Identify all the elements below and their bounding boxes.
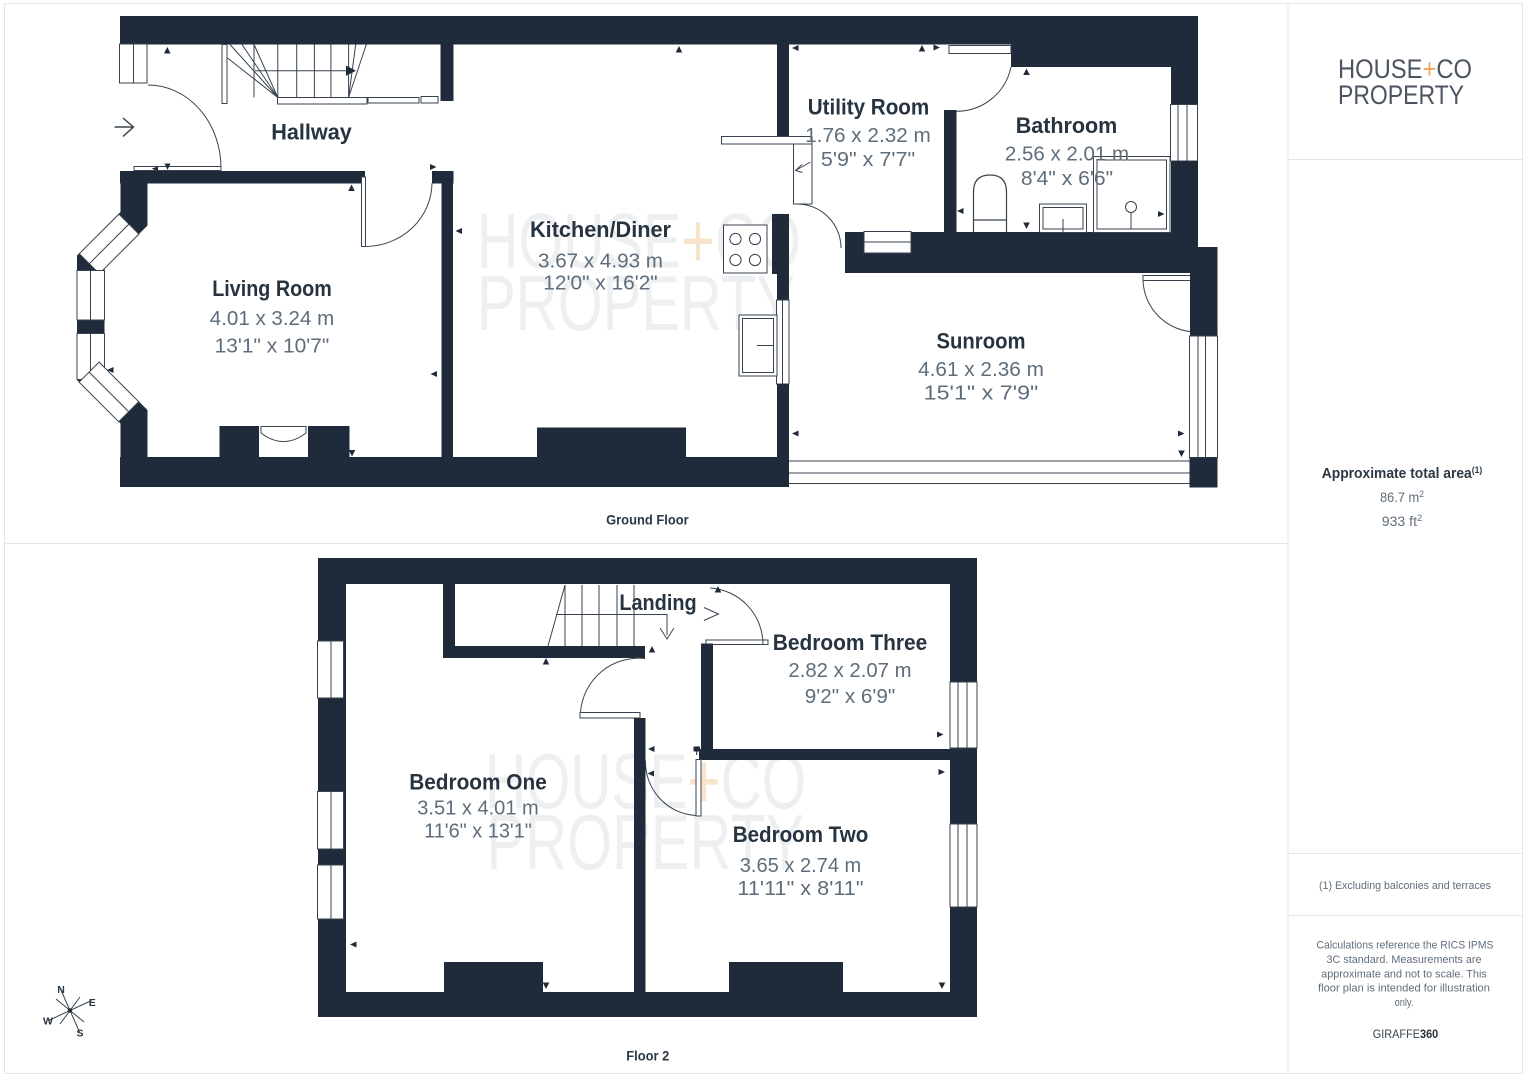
svg-text:E: E [89, 997, 96, 1009]
svg-text:Bedroom Three: Bedroom Three [773, 630, 928, 655]
svg-text:Hallway: Hallway [271, 120, 352, 145]
svg-text:only.: only. [1395, 997, 1414, 1009]
svg-text:(1) Excluding balconies and te: (1) Excluding balconies and terraces [1319, 880, 1491, 892]
svg-text:3C standard. Measurements are: 3C standard. Measurements are [1327, 954, 1482, 966]
svg-text:Ground Floor: Ground Floor [606, 513, 689, 528]
svg-text:Sunroom: Sunroom [937, 329, 1026, 354]
svg-text:4.01 x 3.24 m: 4.01 x 3.24 m [210, 308, 334, 330]
svg-text:12'0" x 16'2": 12'0" x 16'2" [543, 273, 657, 295]
svg-text:Floor 2: Floor 2 [626, 1049, 669, 1064]
svg-text:approximate and not to scale.: approximate and not to scale. This [1321, 968, 1487, 980]
svg-text:3.51 x 4.01 m: 3.51 x 4.01 m [417, 798, 539, 820]
svg-text:floor plan is intended for ill: floor plan is intended for illustration [1318, 983, 1490, 995]
svg-text:11'6" x 13'1": 11'6" x 13'1" [424, 821, 532, 843]
svg-text:8'4" x 6'6": 8'4" x 6'6" [1021, 168, 1113, 190]
svg-text:GIRAFFE360: GIRAFFE360 [1373, 1027, 1439, 1041]
svg-text:15'1" x 7'9": 15'1" x 7'9" [924, 383, 1039, 405]
svg-text:9'2" x 6'9": 9'2" x 6'9" [805, 686, 895, 708]
svg-text:Bedroom Two: Bedroom Two [733, 822, 869, 847]
svg-text:Approximate total area(1): Approximate total area(1) [1322, 465, 1483, 482]
svg-text:3.67 x 4.93 m: 3.67 x 4.93 m [538, 251, 663, 273]
svg-text:13'1" x 10'7": 13'1" x 10'7" [215, 336, 330, 358]
svg-text:S: S [76, 1028, 83, 1040]
svg-text:Utility Room: Utility Room [808, 95, 930, 120]
svg-text:Landing: Landing [619, 590, 696, 615]
svg-text:Bathroom: Bathroom [1016, 113, 1118, 138]
svg-text:4.61 x 2.36 m: 4.61 x 2.36 m [918, 359, 1044, 381]
svg-text:Kitchen/Diner: Kitchen/Diner [530, 217, 671, 242]
svg-text:11'11" x 8'11": 11'11" x 8'11" [737, 878, 863, 900]
svg-text:86.7 m2: 86.7 m2 [1380, 489, 1424, 505]
svg-text:Living Room: Living Room [212, 276, 332, 301]
svg-text:1.76 x 2.32 m: 1.76 x 2.32 m [805, 125, 931, 147]
svg-text:W: W [43, 1016, 53, 1028]
svg-text:Calculations reference the RIC: Calculations reference the RICS IPMS [1317, 940, 1494, 952]
svg-text:N: N [57, 984, 65, 996]
svg-text:2.56 x 2.01 m: 2.56 x 2.01 m [1005, 144, 1129, 166]
svg-text:3.65 x 2.74 m: 3.65 x 2.74 m [740, 855, 862, 877]
svg-text:5'9" x 7'7": 5'9" x 7'7" [821, 149, 915, 171]
svg-text:Bedroom One: Bedroom One [409, 770, 547, 795]
svg-text:2.82 x 2.07 m: 2.82 x 2.07 m [788, 660, 911, 682]
svg-text:933 ft2: 933 ft2 [1382, 513, 1423, 529]
svg-text:PROPERTY: PROPERTY [1338, 80, 1464, 110]
